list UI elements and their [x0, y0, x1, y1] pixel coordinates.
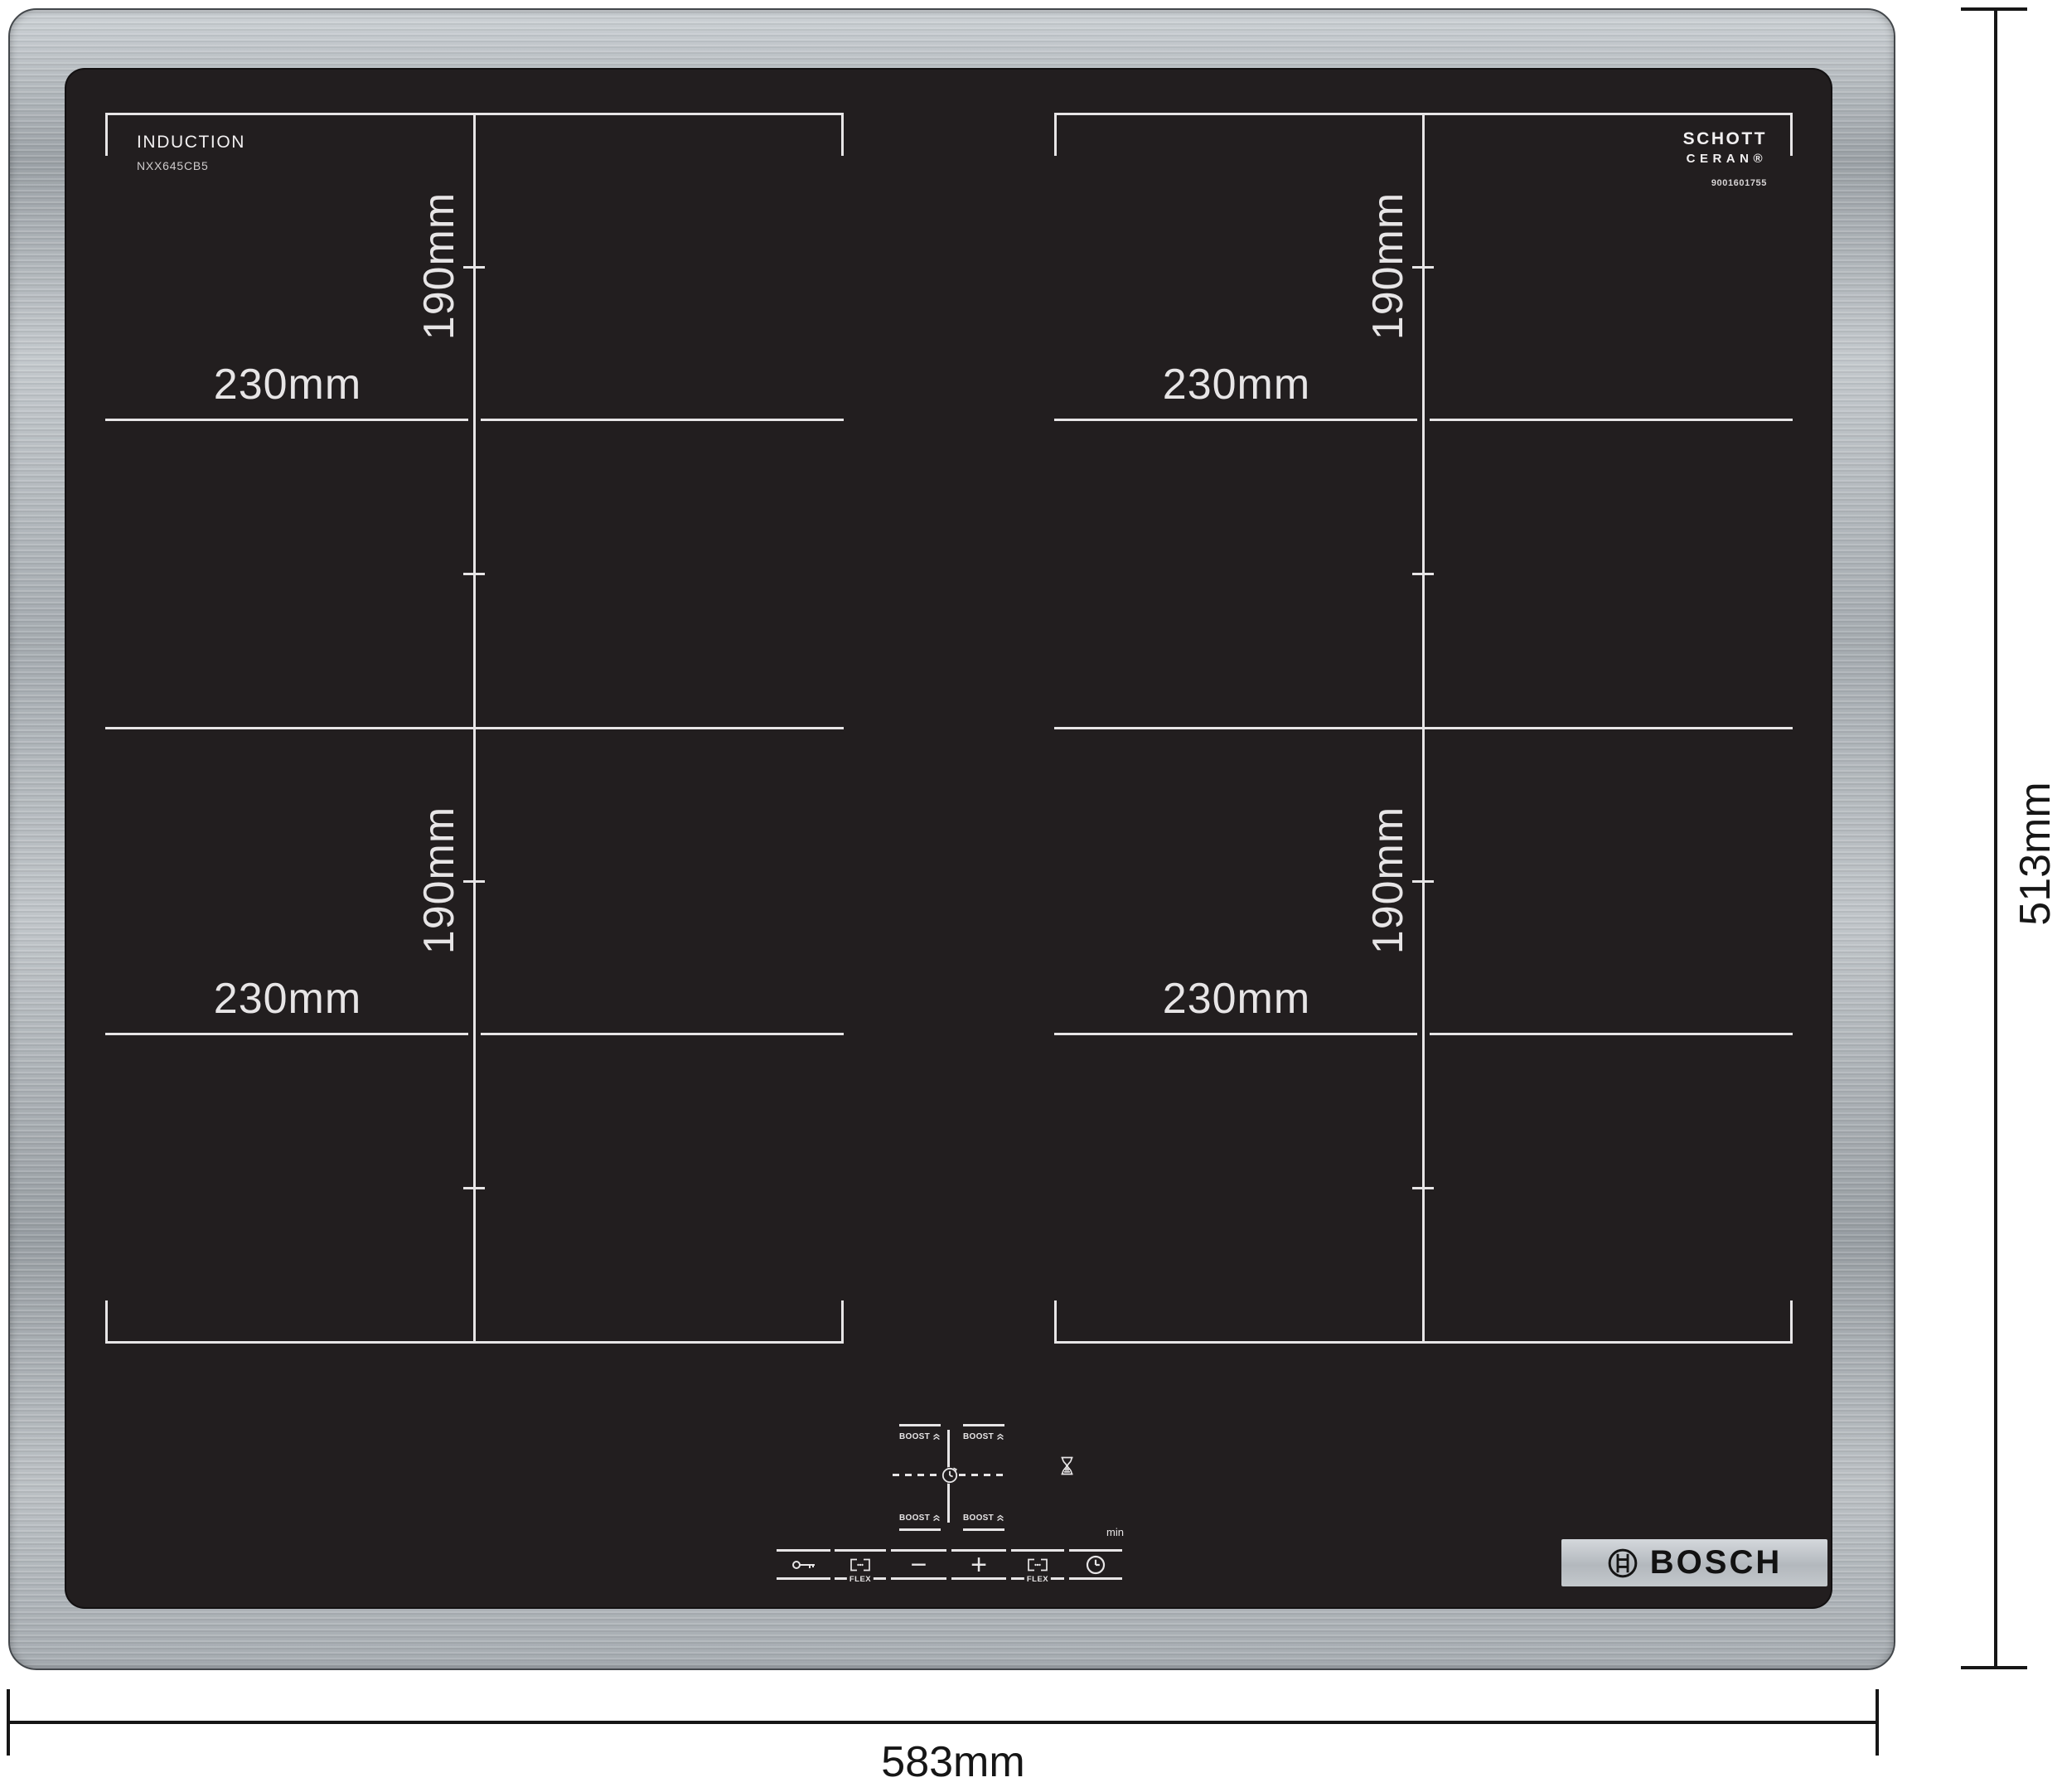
double-chevron-up-icon [932, 1432, 941, 1441]
corner-tick [841, 1300, 844, 1344]
zone-center-vline [1422, 113, 1425, 727]
zone-center-hline [1054, 1033, 1417, 1035]
zone-width-label: 230mm [1163, 360, 1310, 409]
dimension-end-tick [1961, 7, 2027, 11]
overall-width-label: 583mm [881, 1737, 1024, 1787]
bosch-wordmark: BOSCH [1650, 1544, 1782, 1581]
width-dimension-line [7, 1721, 1879, 1724]
corner-tick [105, 113, 108, 156]
boost-cell-line [899, 1528, 941, 1531]
pan-center-cross [463, 870, 485, 892]
product-diagram: INDUCTION NXX645CB5 SCHOTT CERAN® 900160… [0, 0, 2062, 1792]
corner-tick [1790, 1300, 1793, 1344]
flex-bracket-icon [849, 1558, 871, 1572]
dimension-end-tick [1876, 1689, 1879, 1756]
corner-tick [105, 1300, 108, 1344]
boost-cell-line [963, 1424, 1004, 1426]
plus-glyph: + [970, 1551, 987, 1579]
boost-zone-back-right: BOOST [963, 1431, 1004, 1442]
zone-center-hline [1054, 419, 1417, 421]
zone-center-vline [473, 729, 476, 1341]
zone-height-label: 190mm [1363, 192, 1413, 340]
corner-tick [1054, 1300, 1057, 1344]
dimension-end-tick [1961, 1666, 2027, 1669]
power-minus-key: − [891, 1549, 946, 1580]
model-number: NXX645CB5 [137, 159, 209, 172]
minus-glyph: − [911, 1551, 927, 1579]
hourglass-icon [1060, 1456, 1074, 1475]
flex-zone-right-key: FLEX [1011, 1549, 1064, 1580]
boost-divider-dashes [959, 1474, 1007, 1476]
minutes-label: min [1086, 1526, 1124, 1538]
bosch-logo-plate: BOSCH [1561, 1539, 1827, 1586]
pan-center-cross [463, 256, 485, 278]
timer-key [1069, 1549, 1122, 1580]
child-lock-key [777, 1549, 830, 1580]
pan-center-cross [1412, 870, 1434, 892]
ceran-line: CERAN® [1618, 152, 1767, 166]
dimension-end-tick [7, 1689, 10, 1756]
schott-ceran-logo: SCHOTT CERAN® 9001601755 [1618, 129, 1767, 188]
zone-width-label: 230mm [214, 974, 361, 1024]
flex-label: FLEX [1024, 1575, 1051, 1584]
zone-height-label: 190mm [1363, 806, 1413, 954]
zone-width-label: 230mm [1163, 974, 1310, 1024]
double-chevron-up-icon [996, 1514, 1004, 1523]
surface-label: INDUCTION [137, 133, 245, 153]
pan-center-cross [463, 1177, 485, 1199]
zone-center-hline [105, 419, 468, 421]
timer-clock-icon [941, 1466, 959, 1484]
pan-center-cross [1412, 256, 1434, 278]
zone-bottom-edge-line [105, 1341, 844, 1344]
double-chevron-up-icon [996, 1432, 1004, 1441]
flex-zone-left-key: FLEX [835, 1549, 886, 1580]
double-chevron-up-icon [932, 1514, 941, 1523]
boost-cell-line [899, 1424, 941, 1426]
corner-tick [841, 113, 844, 156]
zone-center-hline [1430, 1033, 1793, 1035]
height-dimension-line [1994, 7, 1997, 1669]
boost-zone-front-left: BOOST [899, 1512, 941, 1523]
bosch-symbol-icon [1607, 1547, 1638, 1579]
zone-bottom-edge-line [1054, 1341, 1793, 1344]
schott-line: SCHOTT [1618, 129, 1767, 149]
flex-bracket-icon [1027, 1558, 1048, 1572]
zone-center-vline [1422, 729, 1425, 1341]
corner-tick [1790, 113, 1793, 156]
zone-height-label: 190mm [414, 806, 464, 954]
boost-divider-dashes [893, 1474, 941, 1476]
corner-tick [1054, 113, 1057, 156]
overall-height-label: 513mm [2011, 782, 2060, 925]
boost-cell-line [963, 1528, 1004, 1531]
zone-height-label: 190mm [414, 192, 464, 340]
zone-center-hline [1430, 419, 1793, 421]
zone-center-hline [105, 1033, 468, 1035]
flex-label: FLEX [847, 1575, 874, 1584]
zone-center-hline [481, 419, 844, 421]
zone-width-label: 230mm [214, 360, 361, 409]
power-plus-key: + [951, 1549, 1006, 1580]
zone-center-hline [481, 1033, 844, 1035]
clock-icon [1086, 1555, 1106, 1575]
zone-center-vline [473, 113, 476, 727]
pan-center-cross [1412, 563, 1434, 584]
pan-center-cross [463, 563, 485, 584]
hob-steel-frame: INDUCTION NXX645CB5 SCHOTT CERAN® 900160… [8, 8, 1895, 1670]
pan-center-cross [1412, 1177, 1434, 1199]
hob-glass-surface: INDUCTION NXX645CB5 SCHOTT CERAN® 900160… [66, 70, 1831, 1607]
key-icon [791, 1559, 816, 1571]
boost-zone-front-right: BOOST [963, 1512, 1004, 1523]
serial-number: 9001601755 [1618, 178, 1767, 188]
boost-zone-back-left: BOOST [899, 1431, 941, 1442]
